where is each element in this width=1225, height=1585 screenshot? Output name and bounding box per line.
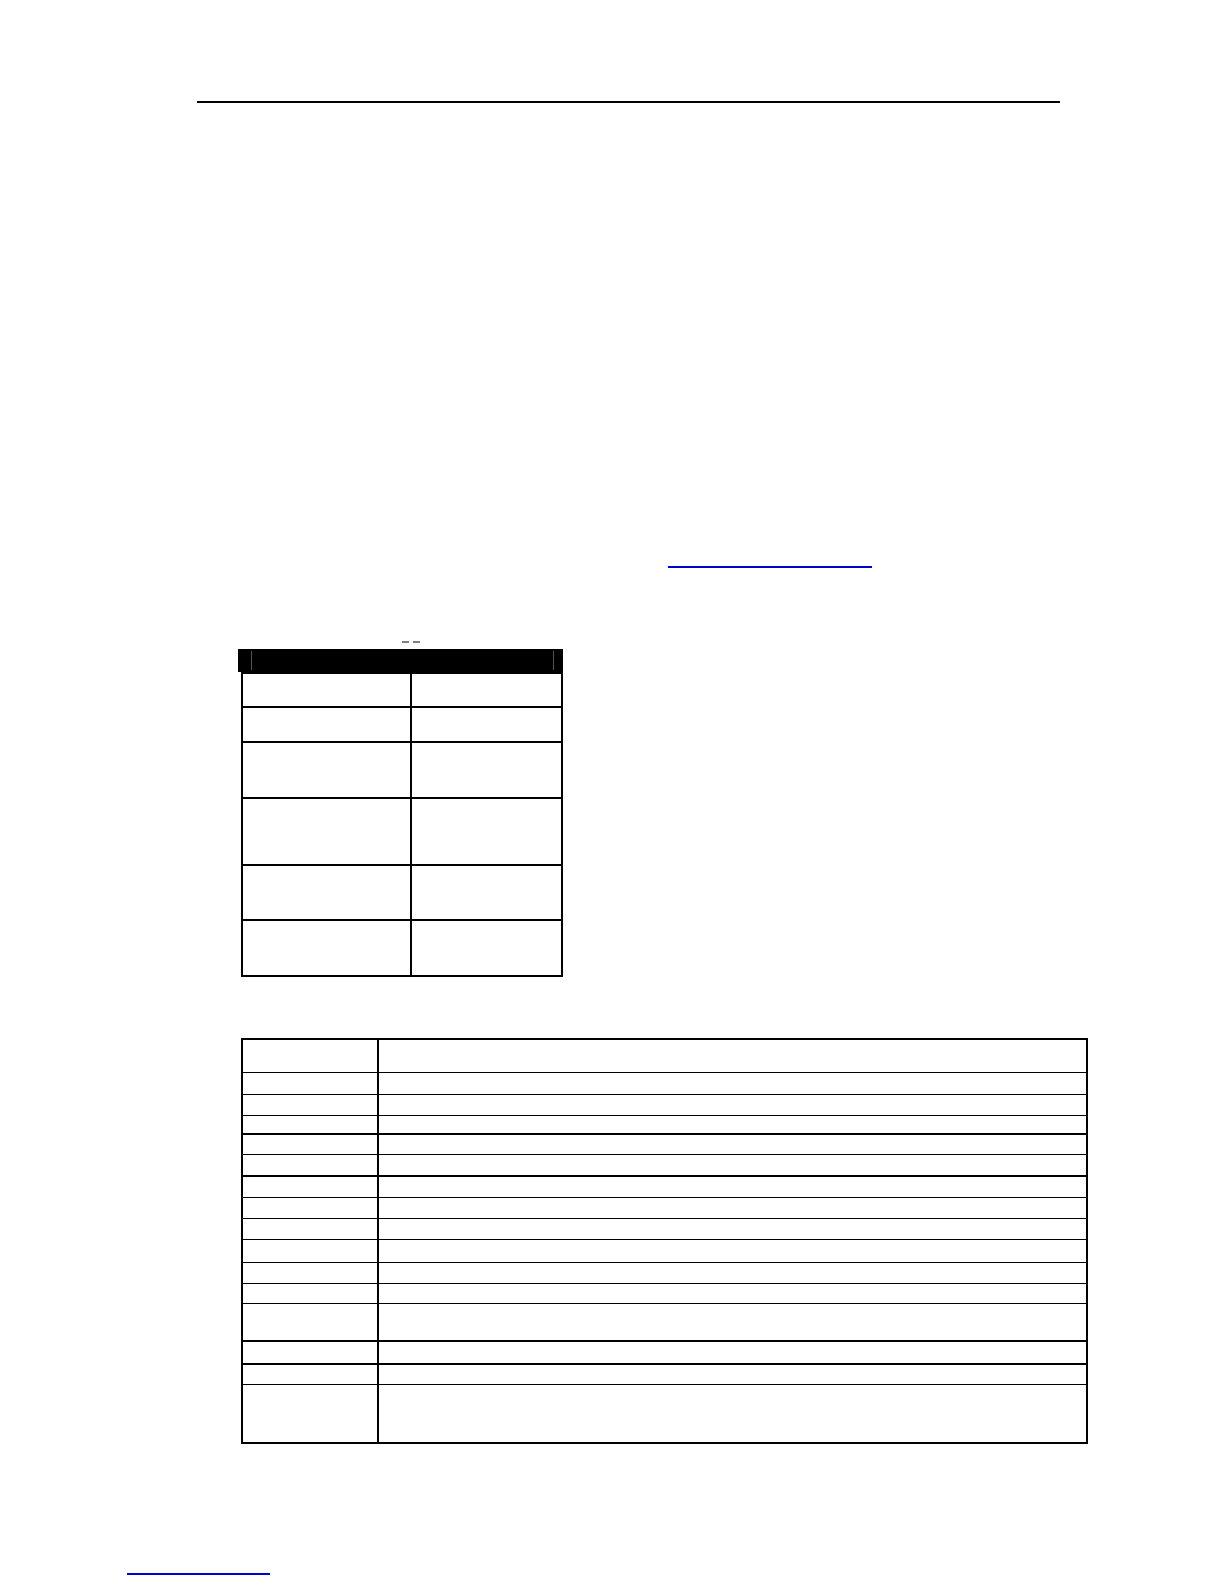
table-cell bbox=[243, 1198, 379, 1218]
table-row bbox=[243, 1304, 1086, 1342]
table-cell bbox=[243, 1342, 379, 1363]
footer-link-underline[interactable] bbox=[127, 1573, 270, 1575]
table-row bbox=[243, 743, 561, 799]
table-row bbox=[243, 1385, 1086, 1442]
table-cell bbox=[243, 1219, 379, 1239]
table-row bbox=[243, 1040, 1086, 1073]
table-cell bbox=[243, 1155, 379, 1175]
table-cell bbox=[243, 1385, 379, 1442]
table-cell bbox=[243, 1073, 379, 1094]
detail-table-grid bbox=[241, 1038, 1088, 1444]
table-row bbox=[243, 1263, 1086, 1284]
document-page bbox=[0, 0, 1225, 1585]
table-row bbox=[243, 708, 561, 743]
header-band-tick-right bbox=[553, 651, 554, 670]
table-row bbox=[243, 1116, 1086, 1135]
table-cell bbox=[243, 1040, 379, 1072]
caption-dash-left bbox=[402, 641, 409, 643]
spec-table-grid bbox=[241, 672, 563, 977]
table-row bbox=[243, 1198, 1086, 1219]
table-cell bbox=[243, 1284, 379, 1303]
table-row bbox=[243, 1155, 1086, 1177]
table-cell bbox=[243, 708, 412, 741]
table-row bbox=[243, 921, 561, 975]
table-cell bbox=[243, 1365, 379, 1384]
inline-link-underline[interactable] bbox=[668, 566, 872, 568]
table-cell bbox=[243, 1240, 379, 1262]
header-band-tick-left bbox=[251, 651, 252, 670]
table-cell bbox=[243, 1263, 379, 1283]
table-cell bbox=[243, 799, 412, 864]
table-row bbox=[243, 866, 561, 921]
caption-dash-right bbox=[413, 641, 420, 643]
table-cell bbox=[243, 1135, 379, 1154]
table-cell bbox=[243, 1095, 379, 1115]
table-row bbox=[243, 1177, 1086, 1198]
table-row bbox=[243, 1365, 1086, 1385]
table-row bbox=[243, 1095, 1086, 1116]
table-cell bbox=[243, 1304, 379, 1340]
table-cell bbox=[243, 1116, 379, 1133]
table-row bbox=[243, 1284, 1086, 1304]
table-cell bbox=[243, 743, 412, 797]
spec-table-header-band bbox=[238, 649, 563, 672]
table-row bbox=[243, 799, 561, 866]
table-row bbox=[243, 1135, 1086, 1155]
table-cell bbox=[243, 866, 412, 919]
top-horizontal-rule bbox=[197, 101, 1060, 103]
table-row bbox=[243, 1240, 1086, 1263]
table-row bbox=[243, 1073, 1086, 1095]
table-cell bbox=[243, 921, 412, 975]
table-cell bbox=[243, 1177, 379, 1197]
table-cell bbox=[243, 674, 412, 706]
table-row bbox=[243, 674, 561, 708]
table-row bbox=[243, 1342, 1086, 1365]
table-row bbox=[243, 1219, 1086, 1240]
